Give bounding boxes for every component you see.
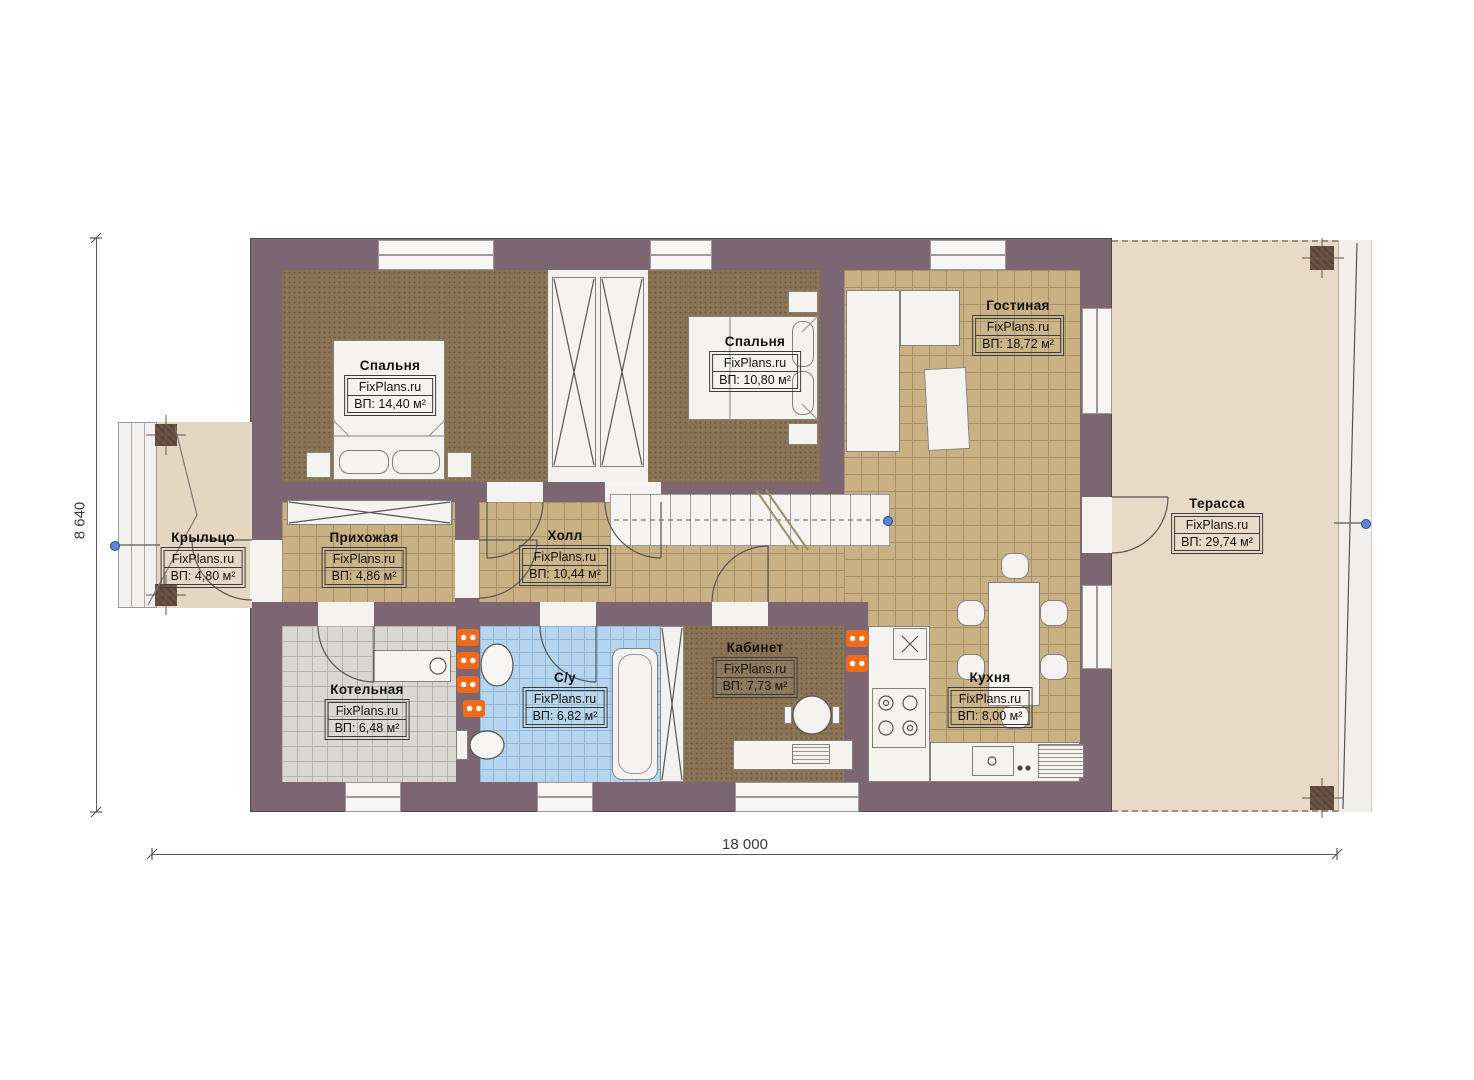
window (345, 782, 401, 812)
brand-watermark: FixPlans.ru (347, 378, 433, 396)
radiator (457, 652, 479, 669)
window (1082, 585, 1112, 669)
desk-equipment (792, 744, 830, 764)
boiler-unit (373, 650, 451, 682)
brand-watermark: FixPlans.ru (522, 548, 608, 566)
stove (872, 688, 926, 748)
coffee-table (924, 367, 970, 451)
wall-segment (282, 482, 487, 502)
dish-rack (1038, 744, 1084, 778)
room-label-bedroom-2: Спальня FixPlans.ru ВП: 10,80 м² (709, 334, 801, 392)
wardrobe (600, 277, 644, 467)
entry-door-opening (250, 540, 282, 602)
chair-armrest (784, 706, 792, 724)
hallway-closet (287, 500, 452, 525)
brand-watermark: FixPlans.ru (712, 354, 798, 372)
corner-sofa (900, 290, 960, 346)
window (378, 240, 494, 270)
wall-segment (455, 502, 479, 540)
nightstand (788, 423, 818, 445)
room-label-bathroom: С/у FixPlans.ru ВП: 6,82 м² (523, 670, 608, 728)
room-name: Прихожая (322, 530, 407, 545)
bathtub (612, 648, 658, 780)
brand-watermark: FixPlans.ru (328, 702, 407, 720)
brand-watermark: FixPlans.ru (716, 660, 795, 678)
brand-watermark: FixPlans.ru (975, 318, 1061, 336)
window (650, 240, 712, 270)
chair-armrest (832, 706, 840, 724)
corner-sofa (846, 290, 900, 452)
wall-segment (282, 602, 318, 626)
room-name: Терасса (1171, 496, 1263, 511)
nightstand (306, 452, 331, 478)
brand-watermark: FixPlans.ru (164, 550, 243, 568)
kitchen-sink (972, 746, 1014, 776)
nightstand (788, 291, 818, 313)
chair (1040, 600, 1068, 626)
door-opening (540, 602, 596, 626)
room-area: ВП: 18,72 м² (975, 336, 1061, 353)
room-name: Холл (519, 528, 611, 543)
room-label-bedroom-1: Спальня FixPlans.ru ВП: 14,40 м² (344, 358, 436, 416)
pillow (392, 450, 440, 474)
room-name: Спальня (344, 358, 436, 373)
room-label-hallway: Прихожая FixPlans.ru ВП: 4,86 м² (322, 530, 407, 588)
terrace-post (1310, 246, 1334, 270)
room-area: ВП: 4,86 м² (325, 568, 404, 585)
room-name: Гостиная (972, 298, 1064, 313)
room-area: ВП: 6,48 м² (328, 720, 407, 737)
vertical-dimension-label: 8 640 (72, 486, 89, 556)
porch-post (155, 424, 177, 446)
wall-segment (768, 602, 868, 626)
wall-segment (596, 602, 712, 626)
grip-handle[interactable] (1361, 519, 1371, 529)
window (735, 782, 859, 812)
chair (957, 600, 985, 626)
vent-box (893, 628, 927, 660)
horizontal-dimension-label: 18 000 (700, 836, 790, 853)
room-label-living-room: Гостиная FixPlans.ru ВП: 18,72 м² (972, 298, 1064, 356)
room-area: ВП: 6,82 м² (526, 708, 605, 725)
brand-watermark: FixPlans.ru (951, 690, 1030, 708)
room-name: Кабинет (713, 640, 798, 655)
window (930, 240, 1006, 270)
radiator (457, 676, 479, 693)
chair (1001, 553, 1029, 579)
vertical-dimension-line (96, 238, 97, 812)
door-opening (318, 602, 374, 626)
pillow (339, 450, 389, 474)
nightstand (447, 452, 472, 478)
room-area: ВП: 10,44 м² (522, 566, 608, 583)
room-area: ВП: 10,80 м² (712, 372, 798, 389)
radiator (846, 630, 868, 647)
room-label-porch: Крыльцо FixPlans.ru ВП: 4,80 м² (161, 530, 246, 588)
radiator (457, 629, 479, 646)
room-area: ВП: 29,74 м² (1174, 534, 1260, 551)
room-area: ВП: 14,40 м² (347, 396, 433, 413)
terrace-door-opening (1082, 497, 1112, 553)
radiator (463, 700, 485, 717)
brand-watermark: FixPlans.ru (1174, 516, 1260, 534)
room-area: ВП: 8,00 м² (951, 708, 1030, 725)
wall-segment (374, 602, 540, 626)
door-opening (712, 602, 768, 626)
room-label-hall: Холл FixPlans.ru ВП: 10,44 м² (519, 528, 611, 586)
room-label-terrace: Терасса FixPlans.ru ВП: 29,74 м² (1171, 496, 1263, 554)
porch-steps (118, 422, 157, 608)
grip-handle[interactable] (110, 541, 120, 551)
window (537, 782, 593, 812)
chair (1040, 654, 1068, 680)
wall-segment (543, 482, 605, 502)
room-name: Котельная (325, 682, 410, 697)
brand-watermark: FixPlans.ru (325, 550, 404, 568)
room-label-boiler-room: Котельная FixPlans.ru ВП: 6,48 м² (325, 682, 410, 740)
room-name: С/у (523, 670, 608, 685)
terrace-post (1310, 786, 1334, 810)
door-opening (455, 540, 479, 598)
room-name: Кухня (948, 670, 1033, 685)
room-area: ВП: 7,73 м² (716, 678, 795, 695)
room-name: Крыльцо (161, 530, 246, 545)
vent-shaft (660, 626, 684, 782)
horizontal-dimension-line (152, 854, 1337, 855)
door-opening (487, 482, 543, 502)
radiator (846, 655, 868, 672)
room-label-kitchen: Кухня FixPlans.ru ВП: 8,00 м² (948, 670, 1033, 728)
grip-handle[interactable] (883, 516, 893, 526)
floorplan-canvas: 8 640 18 000 (0, 0, 1474, 1080)
window (1082, 308, 1112, 414)
wardrobe (552, 277, 596, 467)
toilet-tank (456, 730, 468, 760)
stair-flight (610, 494, 890, 546)
room-area: ВП: 4,80 м² (164, 568, 243, 585)
room-name: Спальня (709, 334, 801, 349)
brand-watermark: FixPlans.ru (526, 690, 605, 708)
wall-segment (820, 270, 844, 482)
room-label-office: Кабинет FixPlans.ru ВП: 7,73 м² (713, 640, 798, 698)
